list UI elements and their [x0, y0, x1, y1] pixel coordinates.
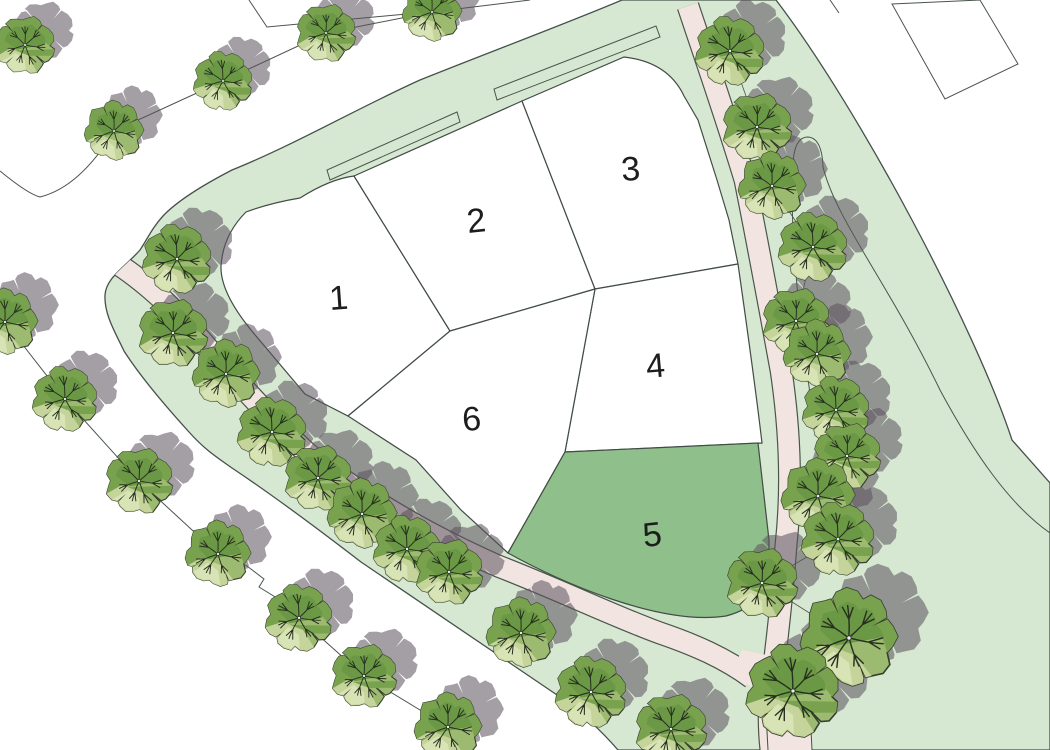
- svg-text:4: 4: [644, 346, 666, 386]
- svg-text:1: 1: [328, 279, 350, 318]
- svg-text:3: 3: [620, 150, 642, 189]
- svg-text:5: 5: [641, 515, 664, 555]
- svg-text:2: 2: [465, 201, 488, 241]
- svg-text:6: 6: [461, 400, 483, 439]
